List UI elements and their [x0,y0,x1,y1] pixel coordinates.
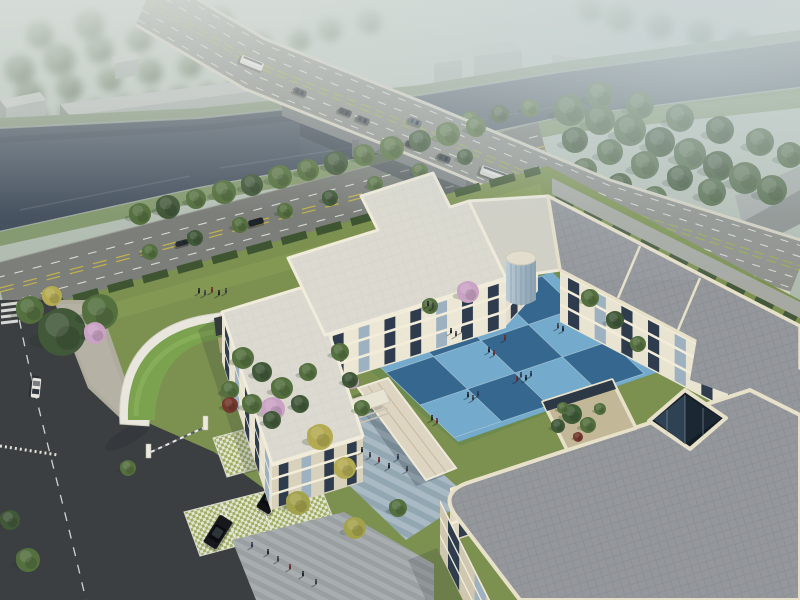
aerial-rendering [0,0,800,600]
gate-pillar [203,416,208,430]
haze-overlay [300,0,800,280]
vehicle-van [28,375,41,398]
rendering-canvas [0,0,800,600]
tree [0,510,20,530]
gate-pillar [146,444,151,458]
